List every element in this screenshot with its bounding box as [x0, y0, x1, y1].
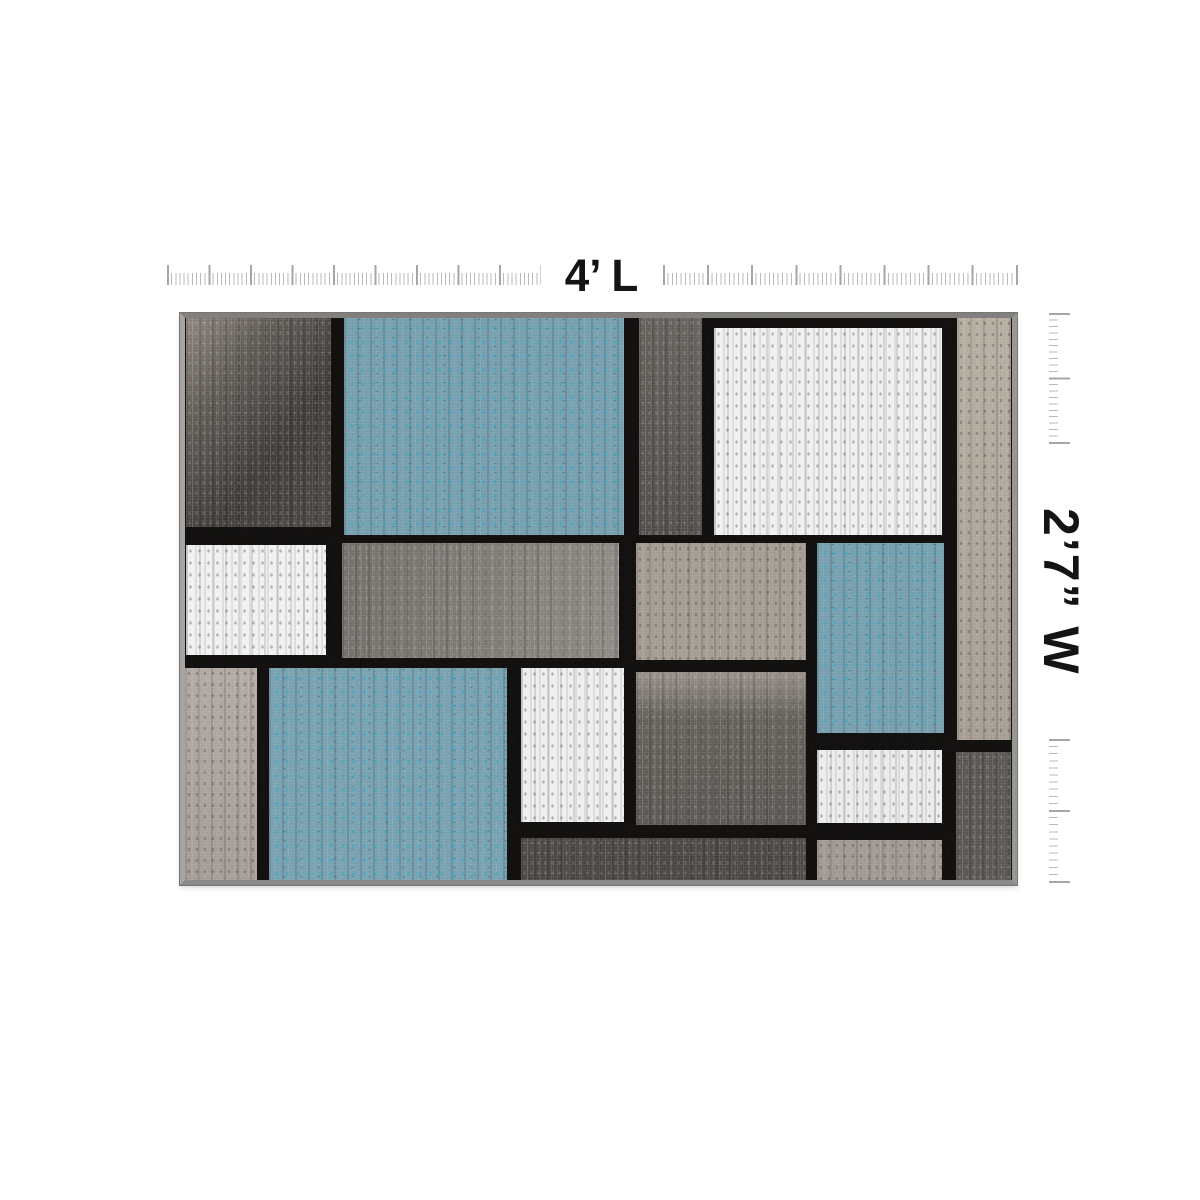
rug-block-gray-bottom-right — [956, 752, 1011, 880]
rug-canvas — [185, 318, 1012, 880]
width-ruler: 2’7” W — [1038, 313, 1084, 883]
rug-block-gray-bottom-mid — [636, 672, 806, 825]
rug-block-gray-top-mid — [639, 318, 702, 535]
rug-block-white-top — [714, 328, 942, 535]
rug-block-blue-bottom — [269, 668, 507, 880]
rug-block-taupe-mid — [636, 543, 806, 660]
rug-block-taupe-bottom-strip — [817, 840, 942, 880]
rug-block-white-bottom-mid — [521, 668, 624, 822]
rug-block-white-mid-left — [186, 545, 326, 655]
length-ruler-left-ticks — [167, 265, 541, 285]
width-ruler-top-ticks — [1049, 313, 1071, 444]
width-ruler-bottom-ticks — [1049, 739, 1071, 883]
length-ruler: 4’ L — [167, 265, 1017, 285]
rug-photo — [180, 313, 1017, 885]
rug-block-charcoal-top-left — [186, 318, 331, 527]
rug-block-blue-mid-right — [817, 543, 944, 733]
length-dimension-label: 4’ L — [541, 253, 662, 298]
rug-block-white-bottom-right — [817, 750, 942, 823]
width-dimension-label: 2’7” W — [1038, 444, 1084, 739]
rug-product-dimension-image: 4’ L 2’7” W — [0, 0, 1200, 1200]
rug-block-charcoal-bottom-strip — [521, 838, 806, 880]
rug-block-gray-mid — [342, 543, 619, 658]
rug-block-taupe-right-strip — [957, 318, 1011, 740]
rug-block-blue-top — [344, 318, 624, 535]
length-ruler-right-ticks — [663, 265, 1018, 285]
rug-block-taupe-bottom-left — [185, 668, 257, 880]
